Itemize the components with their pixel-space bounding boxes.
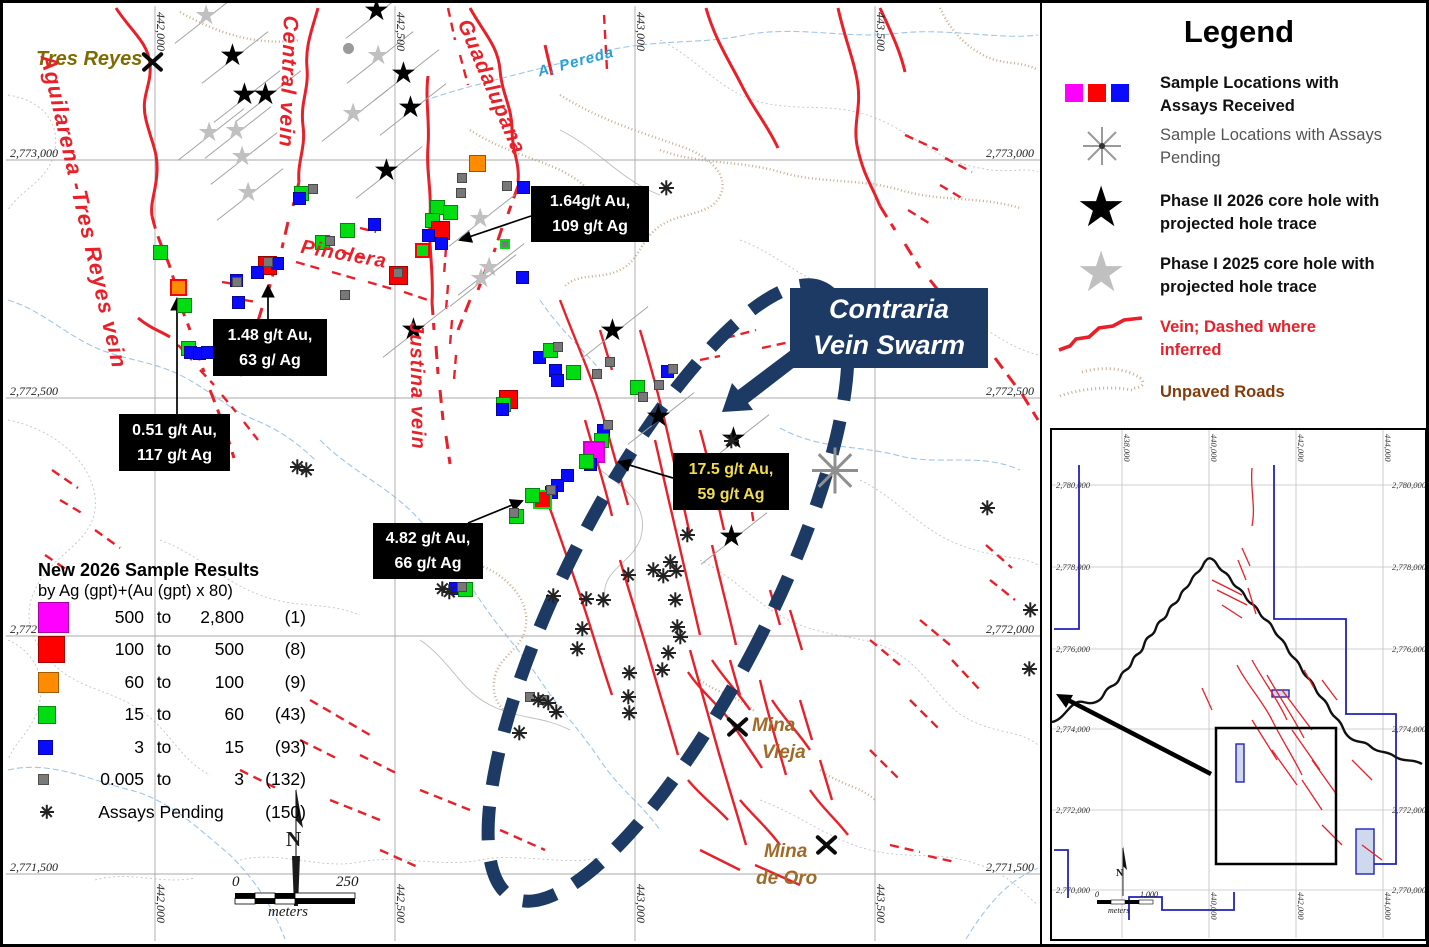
results-title: New 2026 Sample Results <box>38 560 338 581</box>
legend-panel: Legend Sample Locations with Assays Rece… <box>1044 0 1429 947</box>
results-row-pending: Assays Pending(150) <box>38 796 306 828</box>
inset-grid-label-right: 2,772,000 <box>1382 805 1426 815</box>
item <box>38 672 78 693</box>
results-row: 3to15(93) <box>38 731 306 763</box>
magenta-square-icon <box>1065 84 1083 102</box>
vein-line-icon <box>1056 312 1152 356</box>
range-high: 60 <box>184 704 244 725</box>
range-high: 500 <box>184 639 244 660</box>
legend-item-assays-received: Sample Locations with Assays Received <box>1160 72 1422 118</box>
inset-grid-label-left: 2,778,000 <box>1056 562 1098 572</box>
inset-grid-label-right: 2,780,000 <box>1382 480 1426 490</box>
assay-annotation: 0.51 g/t Au,117 g/t Ag <box>119 414 230 471</box>
black-star-icon: ★ <box>1076 175 1126 240</box>
assay-annotation-line2: 66 g/t Ag <box>373 551 483 576</box>
contraria-callout: Contraria Vein Swarm <box>790 288 988 368</box>
assay-annotation-line1: 1.48 g/t Au, <box>213 323 327 348</box>
range-to: to <box>144 737 184 758</box>
range-to: to <box>144 704 184 725</box>
red-square-icon <box>1088 84 1106 102</box>
inset-north-label: N <box>1116 868 1123 879</box>
inset-scale-bar <box>1097 900 1153 904</box>
assay-annotation: 1.64g/t Au,109 g/t Ag <box>531 186 649 242</box>
legend-assay-received-swatches <box>1065 84 1134 107</box>
range-to: to <box>144 639 184 660</box>
range-high: 100 <box>184 672 244 693</box>
range-to: to <box>144 607 184 628</box>
legend-item-4-line2: inferred <box>1160 341 1221 359</box>
pending-count: (150) <box>244 802 306 823</box>
inset-scale-max: 1,000 <box>1140 890 1158 899</box>
inset-grid-label-top: 438,000 <box>1122 434 1132 462</box>
item <box>38 636 78 663</box>
inset-grid-label-top: 442,000 <box>1296 434 1306 462</box>
range-low: 60 <box>78 672 144 693</box>
inset-grid-label-top: 444,000 <box>1383 434 1393 462</box>
unpaved-road-icon <box>1054 362 1158 408</box>
item <box>38 602 78 633</box>
inset-grid-label-right: 2,774,000 <box>1382 724 1426 734</box>
pending-label: Assays Pending <box>78 802 244 823</box>
range-low: 3 <box>78 737 144 758</box>
assay-annotation: 4.82 g/t Au,66 g/t Ag <box>373 523 483 579</box>
legend-item-5-line1: Unpaved Roads <box>1160 383 1285 401</box>
assay-annotation: 1.48 g/t Au,63 g/ Ag <box>213 319 327 376</box>
legend-item-4-line1: Vein; Dashed where <box>1160 318 1316 336</box>
inset-grid-label-bottom: 440,000 <box>1209 892 1219 920</box>
sample-count: (9) <box>244 672 306 693</box>
sample-class-swatch <box>38 672 59 693</box>
item <box>38 774 78 785</box>
assay-annotation-line2: 109 g/t Ag <box>531 214 649 239</box>
inset-veins <box>1202 468 1382 860</box>
main-map: ★★★★★★★★★★★★★★★★★★★★★★ Tres Reyes Mina V… <box>0 0 1042 947</box>
results-subtitle: by Ag (gpt)+(Au (gpt) x 80) <box>38 582 338 601</box>
inset-arrow <box>1068 700 1211 774</box>
legend-item-vein: Vein; Dashed where inferred <box>1160 316 1422 362</box>
vein-swarm-lines <box>545 300 848 885</box>
range-high: 15 <box>184 737 244 758</box>
inset-parcel-1 <box>1236 744 1244 782</box>
legend-item-3-line1: Phase I 2025 core hole with <box>1160 255 1375 273</box>
item <box>38 706 78 724</box>
sample-class-swatch <box>38 740 53 755</box>
assay-annotation-line2: 63 g/ Ag <box>213 348 327 373</box>
assay-annotation-line2: 117 g/t Ag <box>119 443 230 468</box>
inset-grid-label-left: 2,774,000 <box>1056 724 1098 734</box>
results-row: 500to2,800(1) <box>38 601 306 633</box>
inset-grid-label-left: 2,772,000 <box>1056 805 1098 815</box>
sample-count: (8) <box>244 639 306 660</box>
results-legend: New 2026 Sample Results by Ag (gpt)+(Au … <box>38 560 338 851</box>
legend-item-1-line2: Pending <box>1160 149 1221 167</box>
inset-grid-label-left: 2,770,000 <box>1056 885 1098 895</box>
range-low: 500 <box>78 607 144 628</box>
legend-item-0-line2: Assays Received <box>1160 97 1295 115</box>
range-low: 0.005 <box>78 769 144 790</box>
legend-item-1-line1: Sample Locations with Assays <box>1160 126 1382 144</box>
sample-class-swatch <box>38 636 65 663</box>
legend-title: Legend <box>1144 14 1334 50</box>
inset-scale-unit: meters <box>1108 906 1129 915</box>
inset-grid-label-right: 2,778,000 <box>1382 562 1426 572</box>
inset-grid-label-left: 2,780,000 <box>1056 480 1098 490</box>
inset-grid-label-bottom: 444,000 <box>1383 892 1393 920</box>
item <box>38 740 78 755</box>
legend-item-phase1: Phase I 2025 core hole with projected ho… <box>1160 253 1422 299</box>
results-rows: 500to2,800(1)100to500(8)60to100(9)15to60… <box>38 601 338 851</box>
results-row: 0.005to3(132) <box>38 764 306 796</box>
range-to: to <box>144 672 184 693</box>
sample-count: (93) <box>244 737 306 758</box>
inset-location-map: N 0 1,000 meters 438,000440,000442,00044… <box>1050 428 1427 941</box>
range-low: 100 <box>78 639 144 660</box>
legend-item-assays-pending: Sample Locations with Assays Pending <box>1160 124 1422 170</box>
inset-grid-label-bottom: 442,000 <box>1296 892 1306 920</box>
legend-item-2-line2: projected hole trace <box>1160 215 1317 233</box>
range-high: 2,800 <box>184 607 244 628</box>
sample-count: (1) <box>244 607 306 628</box>
results-row: 15to60(43) <box>38 699 306 731</box>
callout-line1: Contraria <box>829 294 949 324</box>
legend-item-phase2: Phase II 2026 core hole with projected h… <box>1160 190 1422 236</box>
sample-class-swatch <box>38 602 69 633</box>
sample-count: (43) <box>244 704 306 725</box>
assay-annotation: 17.5 g/t Au,59 g/t Ag <box>673 453 789 510</box>
inset-linework <box>1052 430 1424 938</box>
results-row: 60to100(9) <box>38 666 306 698</box>
vein-lines-solid <box>116 8 905 337</box>
range-low: 15 <box>78 704 144 725</box>
inset-grid-label-top: 440,000 <box>1209 434 1219 462</box>
inset-north-blade <box>1123 846 1127 870</box>
inset-topo-boundary <box>1052 558 1422 764</box>
scale-bar <box>235 893 355 904</box>
sample-count: (132) <box>244 769 306 790</box>
inset-grid-label-right: 2,770,000 <box>1382 885 1426 895</box>
range-to: to <box>144 769 184 790</box>
gray-star-icon: ★ <box>1076 240 1126 305</box>
blue-square-icon <box>1111 84 1129 102</box>
legend-item-roads: Unpaved Roads <box>1160 381 1422 404</box>
results-row: 100to500(8) <box>38 634 306 666</box>
assay-annotation-line1: 0.51 g/t Au, <box>119 418 230 443</box>
inset-extent-rect <box>1216 728 1336 864</box>
callout-line2: Vein Swarm <box>813 330 965 360</box>
assay-annotation-line1: 1.64g/t Au, <box>531 189 649 214</box>
sample-class-swatch <box>38 706 56 724</box>
geological-map-figure: ★★★★★★★★★★★★★★★★★★★★★★ Tres Reyes Mina V… <box>0 0 1429 947</box>
range-high: 3 <box>184 769 244 790</box>
legend-item-3-line2: projected hole trace <box>1160 278 1317 296</box>
assays-pending-asterisk-icon <box>1078 122 1126 170</box>
inset-grid-label-right: 2,776,000 <box>1382 644 1426 654</box>
inset-grid-label-left: 2,776,000 <box>1056 644 1098 654</box>
assay-annotation-line1: 4.82 g/t Au, <box>373 526 483 551</box>
assay-annotation-line1: 17.5 g/t Au, <box>673 457 789 482</box>
legend-item-0-line1: Sample Locations with <box>1160 74 1339 92</box>
legend-item-2-line1: Phase II 2026 core hole with <box>1160 192 1379 210</box>
assay-annotation-line2: 59 g/t Ag <box>673 482 789 507</box>
sample-class-swatch <box>38 774 49 785</box>
